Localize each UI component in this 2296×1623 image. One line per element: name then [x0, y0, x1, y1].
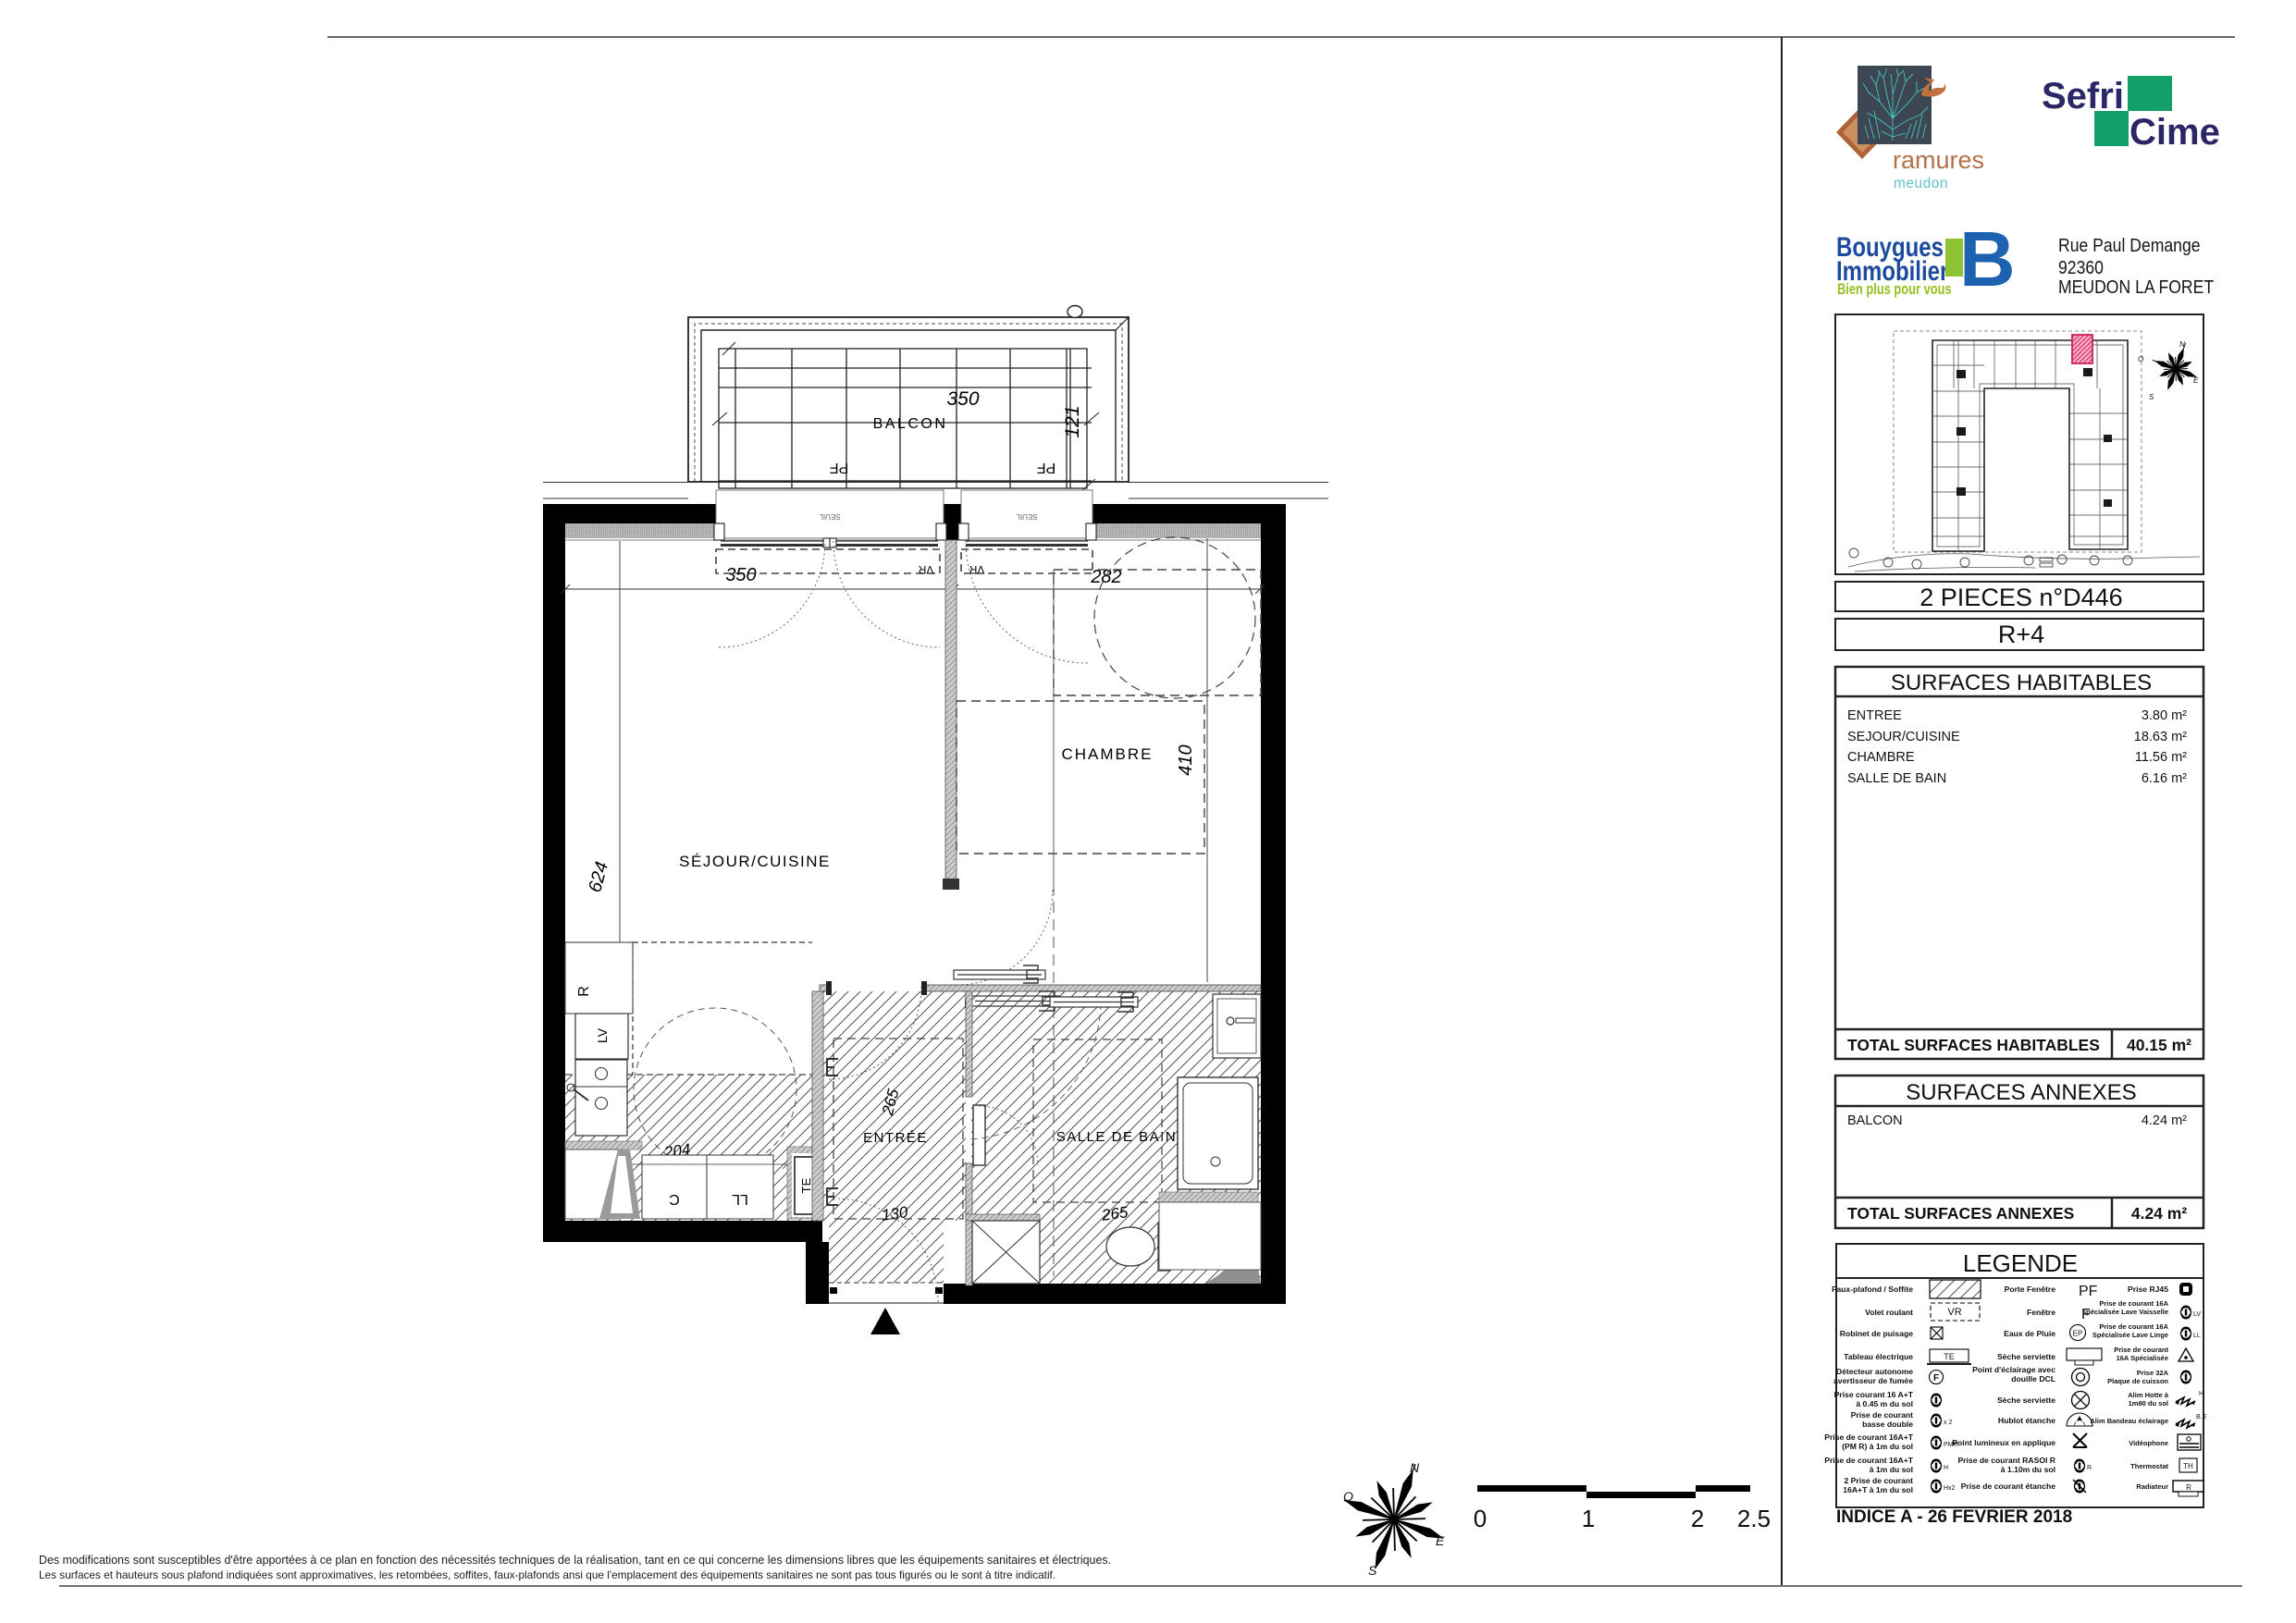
svg-text:1: 1: [1582, 1505, 1595, 1532]
svg-text:130: 130: [881, 1203, 909, 1224]
svg-text:INDICE A - 26 FEVRIER 2018: INDICE A - 26 FEVRIER 2018: [1836, 1507, 2072, 1527]
svg-text:Volet roulant: Volet roulant: [1865, 1308, 1913, 1317]
svg-text:Sèche serviette: Sèche serviette: [1997, 1352, 2055, 1361]
svg-text:R: R: [2186, 1483, 2191, 1492]
svg-text:6.16 m²: 6.16 m²: [2142, 771, 2187, 786]
svg-text:S: S: [2149, 393, 2154, 401]
svg-text:Point lumineux en applique: Point lumineux en applique: [1952, 1438, 2055, 1447]
svg-text:Prise de courant RASOI R: Prise de courant RASOI R: [1957, 1456, 2055, 1465]
svg-text:16A+T à 1m du sol: 16A+T à 1m du sol: [1843, 1485, 1913, 1494]
svg-text:2 PIECES n°D446: 2 PIECES n°D446: [1920, 584, 2122, 611]
svg-text:Spécialisée Lave Linge: Spécialisée Lave Linge: [2092, 1331, 2168, 1339]
svg-text:Radiateur: Radiateur: [2136, 1482, 2168, 1491]
svg-text:E: E: [2193, 376, 2199, 385]
svg-text:H: H: [2199, 1391, 2203, 1397]
svg-text:ENTREE: ENTREE: [1847, 708, 1902, 723]
svg-text:Rue Paul Demange: Rue Paul Demange: [2058, 235, 2201, 255]
svg-text:H: H: [1944, 1465, 1948, 1471]
svg-text:92360: 92360: [2058, 257, 2104, 277]
svg-text:à 0.45 m du sol: à 0.45 m du sol: [1856, 1399, 1913, 1408]
svg-text:0: 0: [1474, 1505, 1487, 1532]
svg-text:N: N: [1410, 1460, 1420, 1475]
svg-text:PF: PF: [1037, 460, 1056, 475]
svg-text:TOTAL SURFACES ANNEXES: TOTAL SURFACES ANNEXES: [1847, 1204, 2074, 1223]
svg-text:2.5: 2.5: [1737, 1505, 1771, 1532]
svg-text:O: O: [2138, 355, 2143, 363]
svg-text:Prise 32A: Prise 32A: [2137, 1369, 2169, 1377]
svg-text:Porte Fenêtre: Porte Fenêtre: [2005, 1285, 2056, 1294]
svg-text:LEGENDE: LEGENDE: [1963, 1249, 2078, 1277]
svg-text:Prise de courant 16A: Prise de courant 16A: [2099, 1299, 2168, 1308]
svg-text:Tableau électrique: Tableau électrique: [1844, 1352, 1913, 1361]
svg-text:350: 350: [946, 388, 979, 410]
svg-text:MEUDON LA FORET: MEUDON LA FORET: [2058, 277, 2215, 297]
svg-text:Prise de courant étanche: Prise de courant étanche: [1961, 1482, 2055, 1491]
svg-text:à 1.10m du sol: à 1.10m du sol: [2001, 1465, 2055, 1474]
svg-text:LL: LL: [2193, 1333, 2201, 1339]
svg-text:3.80 m²: 3.80 m²: [2142, 708, 2187, 723]
svg-text:Vidéophone: Vidéophone: [2129, 1439, 2168, 1447]
svg-text:4.24 m²: 4.24 m²: [2142, 1113, 2187, 1128]
svg-text:Des modifications sont suscept: Des modifications sont susceptibles d'êt…: [39, 1554, 1111, 1567]
svg-text:C: C: [669, 1191, 680, 1207]
svg-text:SEJOUR/CUISINE: SEJOUR/CUISINE: [1847, 730, 1960, 744]
svg-text:Hx2: Hx2: [1944, 1485, 1956, 1492]
svg-text:SALLE DE BAIN: SALLE DE BAIN: [1847, 771, 1946, 786]
svg-text:S: S: [1368, 1563, 1377, 1578]
svg-text:(PM R) à 1m du sol: (PM R) à 1m du sol: [1842, 1442, 1913, 1451]
svg-text:SALLE DE BAIN: SALLE DE BAIN: [1056, 1129, 1177, 1145]
svg-text:SURFACES ANNEXES: SURFACES ANNEXES: [1906, 1080, 2136, 1105]
svg-text:4.24 m²: 4.24 m²: [2131, 1204, 2187, 1223]
svg-text:F: F: [1933, 1373, 1939, 1383]
svg-text:SEUIL: SEUIL: [819, 512, 841, 521]
svg-text:CHAMBRE: CHAMBRE: [1061, 745, 1153, 763]
svg-text:douille DCL: douille DCL: [2011, 1374, 2055, 1383]
svg-text:BALCON: BALCON: [1847, 1113, 1903, 1128]
svg-text:Alim Hotte à: Alim Hotte à: [2128, 1391, 2169, 1399]
svg-text:Eaux de Pluie: Eaux de Pluie: [2004, 1329, 2055, 1338]
svg-text:Prise de courant 16A: Prise de courant 16A: [2099, 1322, 2168, 1331]
svg-text:à 1m du sol: à 1m du sol: [1870, 1465, 1913, 1474]
svg-text:Faux-plafond / Soffite: Faux-plafond / Soffite: [1832, 1285, 1913, 1294]
svg-text:350: 350: [725, 565, 756, 585]
svg-text:Alim Bandeau éclairage: Alim Bandeau éclairage: [2090, 1417, 2168, 1425]
svg-text:VR: VR: [1947, 1307, 1961, 1318]
svg-text:410: 410: [1176, 744, 1196, 775]
svg-text:TOTAL SURFACES HABITABLES: TOTAL SURFACES HABITABLES: [1847, 1036, 2100, 1054]
svg-text:Les surfaces et hauteurs sous: Les surfaces et hauteurs sous plafond in…: [39, 1568, 1055, 1581]
svg-text:VR: VR: [969, 563, 984, 576]
svg-text:Prise courant 16 A+T: Prise courant 16 A+T: [1834, 1390, 1914, 1399]
svg-text:Thermostat: Thermostat: [2130, 1462, 2168, 1470]
svg-text:40.15 m²: 40.15 m²: [2127, 1036, 2191, 1054]
svg-text:PF: PF: [830, 460, 849, 475]
svg-text:TE: TE: [799, 1177, 813, 1193]
svg-text:EP: EP: [2073, 1330, 2083, 1338]
svg-text:TH: TH: [2183, 1462, 2193, 1470]
svg-text:Fenêtre: Fenêtre: [2027, 1308, 2055, 1317]
svg-text:Détecteur autonome: Détecteur autonome: [1836, 1367, 1913, 1376]
svg-text:18.63 m²: 18.63 m²: [2134, 730, 2187, 744]
svg-text:E: E: [1436, 1533, 1445, 1548]
svg-text:2 Prise de courant: 2 Prise de courant: [1844, 1476, 1913, 1485]
svg-text:TE: TE: [1944, 1352, 1955, 1361]
svg-text:Hublot étanche: Hublot étanche: [1998, 1416, 2055, 1425]
svg-text:Sefri: Sefri: [2042, 76, 2124, 117]
svg-text:Prise de courant: Prise de courant: [2114, 1346, 2168, 1354]
svg-text:avertisseur de fumée: avertisseur de fumée: [1833, 1376, 1913, 1385]
svg-text:LV: LV: [2193, 1311, 2201, 1318]
svg-text:Prise RJ45: Prise RJ45: [2128, 1285, 2168, 1294]
svg-text:meudon: meudon: [1894, 176, 1948, 191]
svg-text:Prise de courant: Prise de courant: [1851, 1410, 1913, 1420]
svg-text:CHAMBRE: CHAMBRE: [1847, 750, 1915, 765]
svg-text:121: 121: [1062, 405, 1083, 437]
svg-text:B: B: [1959, 215, 2016, 302]
svg-text:basse double: basse double: [1862, 1420, 1913, 1429]
svg-text:LV: LV: [595, 1027, 610, 1043]
svg-text:Plaque de cuisson: Plaque de cuisson: [2107, 1377, 2168, 1385]
svg-text:Bien plus pour vous: Bien plus pour vous: [1837, 282, 1952, 299]
svg-text:Sèche serviette: Sèche serviette: [1997, 1396, 2055, 1405]
svg-text:Prise de courant 16A+T: Prise de courant 16A+T: [1824, 1432, 1914, 1442]
svg-text:R+4: R+4: [1998, 621, 2044, 648]
svg-text:spécialisée Lave Vaisselle: spécialisée Lave Vaisselle: [2082, 1308, 2168, 1316]
svg-text:R: R: [2087, 1465, 2092, 1471]
svg-text:N: N: [2179, 340, 2185, 349]
svg-text:O: O: [1343, 1489, 1353, 1504]
svg-text:Point d'éclairage avec: Point d'éclairage avec: [1972, 1365, 2055, 1374]
svg-text:Cime: Cime: [2129, 112, 2220, 153]
svg-text:PF: PF: [2079, 1284, 2098, 1299]
svg-text:2: 2: [1691, 1505, 1704, 1532]
svg-text:624: 624: [585, 859, 612, 894]
svg-text:R: R: [576, 986, 592, 997]
svg-text:VR: VR: [918, 563, 933, 576]
svg-text:LL: LL: [732, 1191, 748, 1207]
svg-text:1m80 du sol: 1m80 du sol: [2129, 1399, 2168, 1408]
svg-text:Robinet de puisage: Robinet de puisage: [1840, 1329, 1913, 1338]
svg-text:SURFACES HABITABLES: SURFACES HABITABLES: [1891, 670, 2152, 695]
svg-text:16A Spécialisée: 16A Spécialisée: [2117, 1354, 2168, 1362]
svg-text:ENTRÉE: ENTRÉE: [863, 1130, 928, 1146]
svg-text:x 2: x 2: [1944, 1420, 1952, 1426]
svg-text:Prise de courant 16A+T: Prise de courant 16A+T: [1824, 1456, 1914, 1465]
svg-text:11.56 m²: 11.56 m²: [2135, 750, 2187, 765]
svg-text:B.E: B.E: [2196, 1414, 2207, 1420]
svg-text:BALCON: BALCON: [873, 416, 948, 432]
svg-text:SÉJOUR/CUISINE: SÉJOUR/CUISINE: [679, 853, 831, 870]
svg-text:SEUIL: SEUIL: [1016, 512, 1038, 521]
svg-text:ramures: ramures: [1893, 146, 1984, 174]
